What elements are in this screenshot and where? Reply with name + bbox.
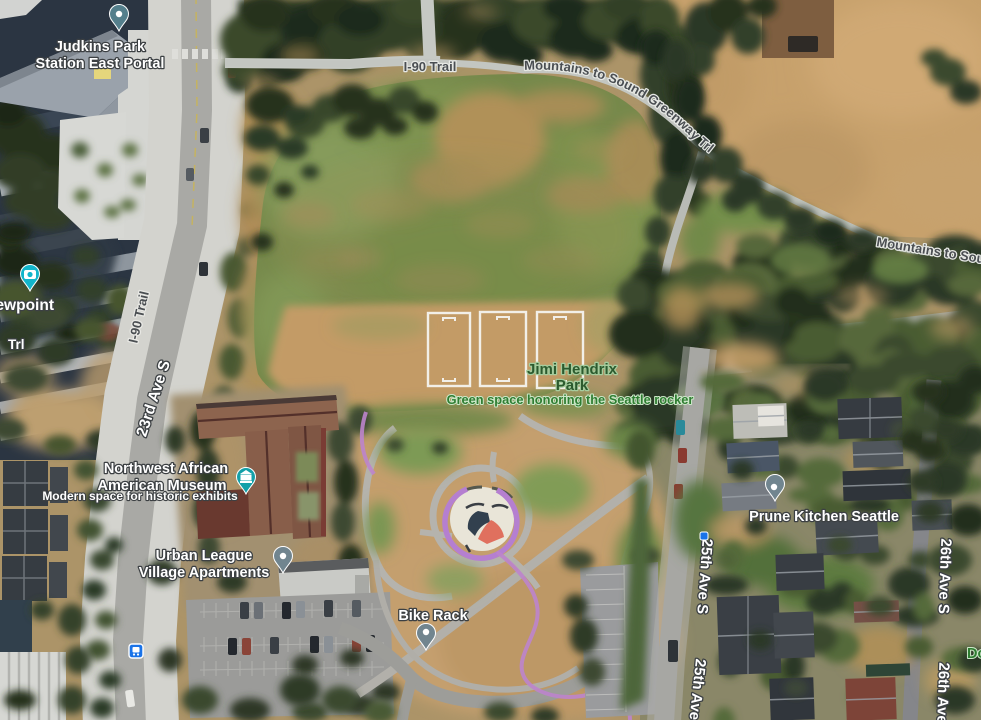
- svg-text:Northwest African: Northwest African: [104, 461, 228, 477]
- svg-text:Jimi Hendrix: Jimi Hendrix: [527, 361, 618, 378]
- svg-text:Village Apartments: Village Apartments: [139, 565, 270, 581]
- svg-text:Green space honoring the Seatt: Green space honoring the Seattle rocker: [447, 392, 694, 407]
- svg-text:Bike Rack: Bike Rack: [398, 608, 468, 624]
- svg-text:ewpoint: ewpoint: [0, 297, 54, 314]
- svg-text:Judkins Park: Judkins Park: [55, 39, 146, 55]
- svg-text:Urban League: Urban League: [156, 548, 253, 564]
- svg-text:26th Ave S: 26th Ave S: [933, 662, 953, 720]
- svg-text:26th Ave S: 26th Ave S: [935, 538, 955, 614]
- svg-text:Prune Kitchen Seattle: Prune Kitchen Seattle: [749, 509, 899, 525]
- svg-text:Modern space for historic exhi: Modern space for historic exhibits: [42, 489, 238, 503]
- svg-text:Do: Do: [967, 646, 981, 662]
- svg-text:I-90 Trail: I-90 Trail: [404, 59, 457, 74]
- svg-text:Station East Portal: Station East Portal: [36, 56, 165, 72]
- svg-text:Trl: Trl: [8, 337, 25, 352]
